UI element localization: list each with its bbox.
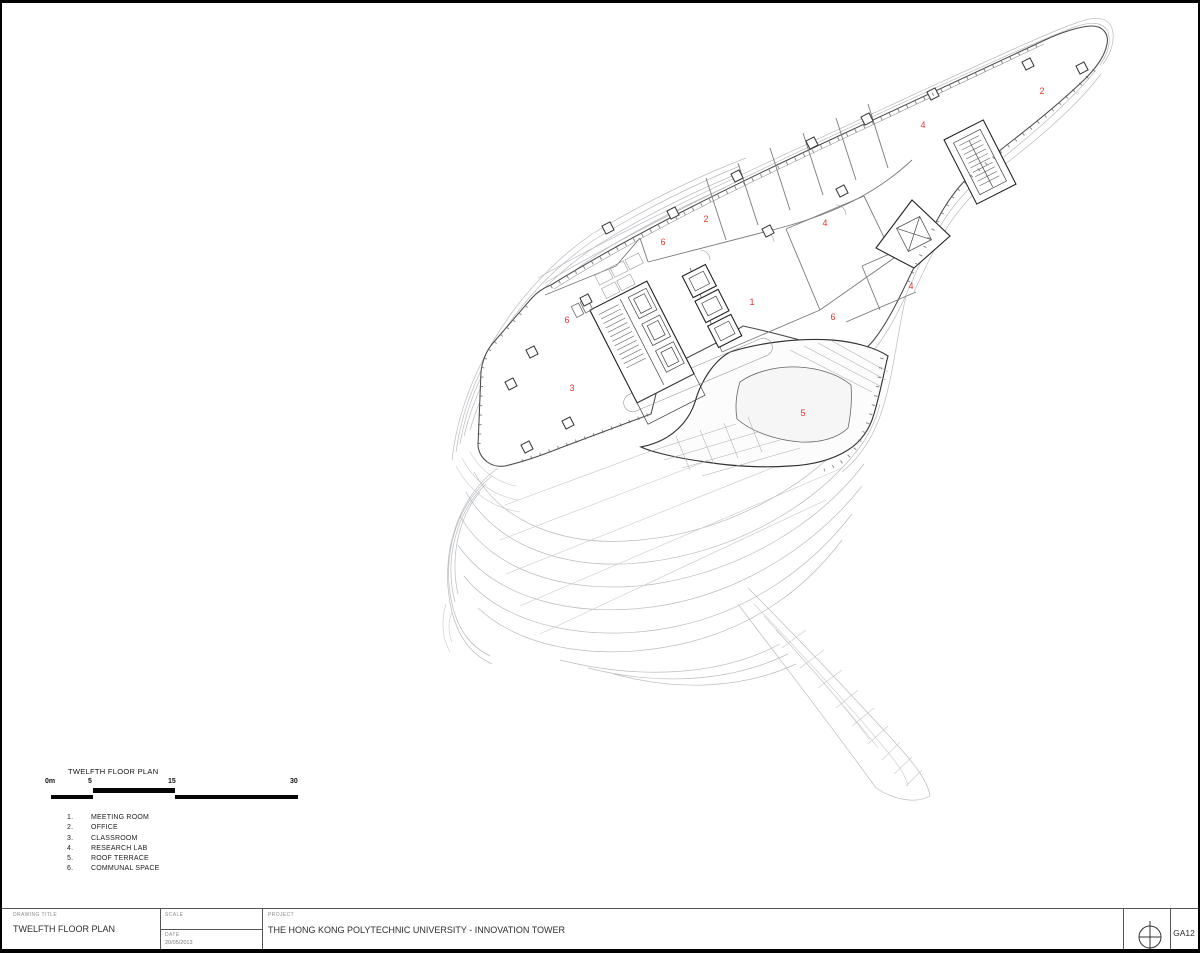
room-number-marker: 6 [564, 315, 569, 325]
drawing-title-value: TWELFTH FLOOR PLAN [13, 924, 115, 934]
room-number-marker: 3 [569, 383, 574, 393]
legend-label: RESEARCH LAB [91, 844, 147, 854]
drawing-title-label: DRAWING TITLE [13, 912, 57, 918]
scale-label-5: 5 [88, 778, 92, 785]
room-number-marker: 1 [749, 297, 754, 307]
legend-number: 5. [67, 854, 91, 864]
north-arrow-icon [1134, 918, 1166, 952]
titleblock-divider [160, 929, 262, 930]
titleblock-divider [1123, 909, 1124, 949]
room-number-marker: 4 [920, 120, 925, 130]
legend-item: 4.RESEARCH LAB [67, 844, 160, 854]
sheet-border [0, 0, 2, 953]
titleblock-bottom-bar [0, 949, 1200, 953]
scale-bar-segment [51, 795, 93, 800]
scale-label-15: 15 [168, 778, 176, 785]
legend-label: COMMUNAL SPACE [91, 864, 160, 874]
tail-contours [738, 588, 930, 800]
room-number-marker: 6 [830, 312, 835, 322]
scale-bar-segment [93, 788, 175, 793]
legend-number: 1. [67, 813, 91, 823]
legend-label: OFFICE [91, 823, 118, 833]
legend-label: MEETING ROOM [91, 813, 149, 823]
titleblock-divider [262, 909, 263, 949]
titleblock-top-line [2, 908, 1198, 909]
legend-item: 6.COMMUNAL SPACE [67, 864, 160, 874]
legend-item: 2.OFFICE [67, 823, 160, 833]
scale-label-0m: 0m [45, 778, 55, 785]
legend-item: 1.MEETING ROOM [67, 813, 160, 823]
legend-number: 4. [67, 844, 91, 854]
room-number-marker: 4 [908, 281, 913, 291]
sheet-border [0, 0, 1200, 3]
legend-item: 3.CLASSROOM [67, 834, 160, 844]
date-cell-label: DATE [165, 932, 180, 938]
legend-number: 3. [67, 834, 91, 844]
room-number-marker: 6 [660, 237, 665, 247]
plan-caption-title: TWELFTH FLOOR PLAN [68, 767, 158, 776]
project-title-value: THE HONG KONG POLYTECHNIC UNIVERSITY - I… [268, 925, 565, 935]
legend-number: 6. [67, 864, 91, 874]
floor-plan-drawing: 12234445666 [0, 0, 1200, 953]
room-number-marker: 2 [703, 214, 708, 224]
legend-label: ROOF TERRACE [91, 854, 149, 864]
scale-label-30: 30 [290, 778, 298, 785]
project-cell-label: PROJECT [268, 912, 294, 918]
legend-label: CLASSROOM [91, 834, 138, 844]
legend-number: 2. [67, 823, 91, 833]
room-number-marker: 4 [822, 218, 827, 228]
room-number-marker: 5 [800, 408, 805, 418]
room-legend: 1.MEETING ROOM 2.OFFICE 3.CLASSROOM 4.RE… [67, 813, 160, 875]
date-value: 20/05/2013 [165, 940, 193, 946]
legend-item: 5.ROOF TERRACE [67, 854, 160, 864]
drawing-sheet: 12234445666 TWELFTH FLOOR PLAN 0m 5 15 3… [0, 0, 1200, 953]
sheet-number: GA12 [1170, 928, 1198, 938]
room-number-marker: 2 [1039, 86, 1044, 96]
scale-bar-segment [175, 795, 298, 800]
scale-cell-label: SCALE [165, 912, 183, 918]
